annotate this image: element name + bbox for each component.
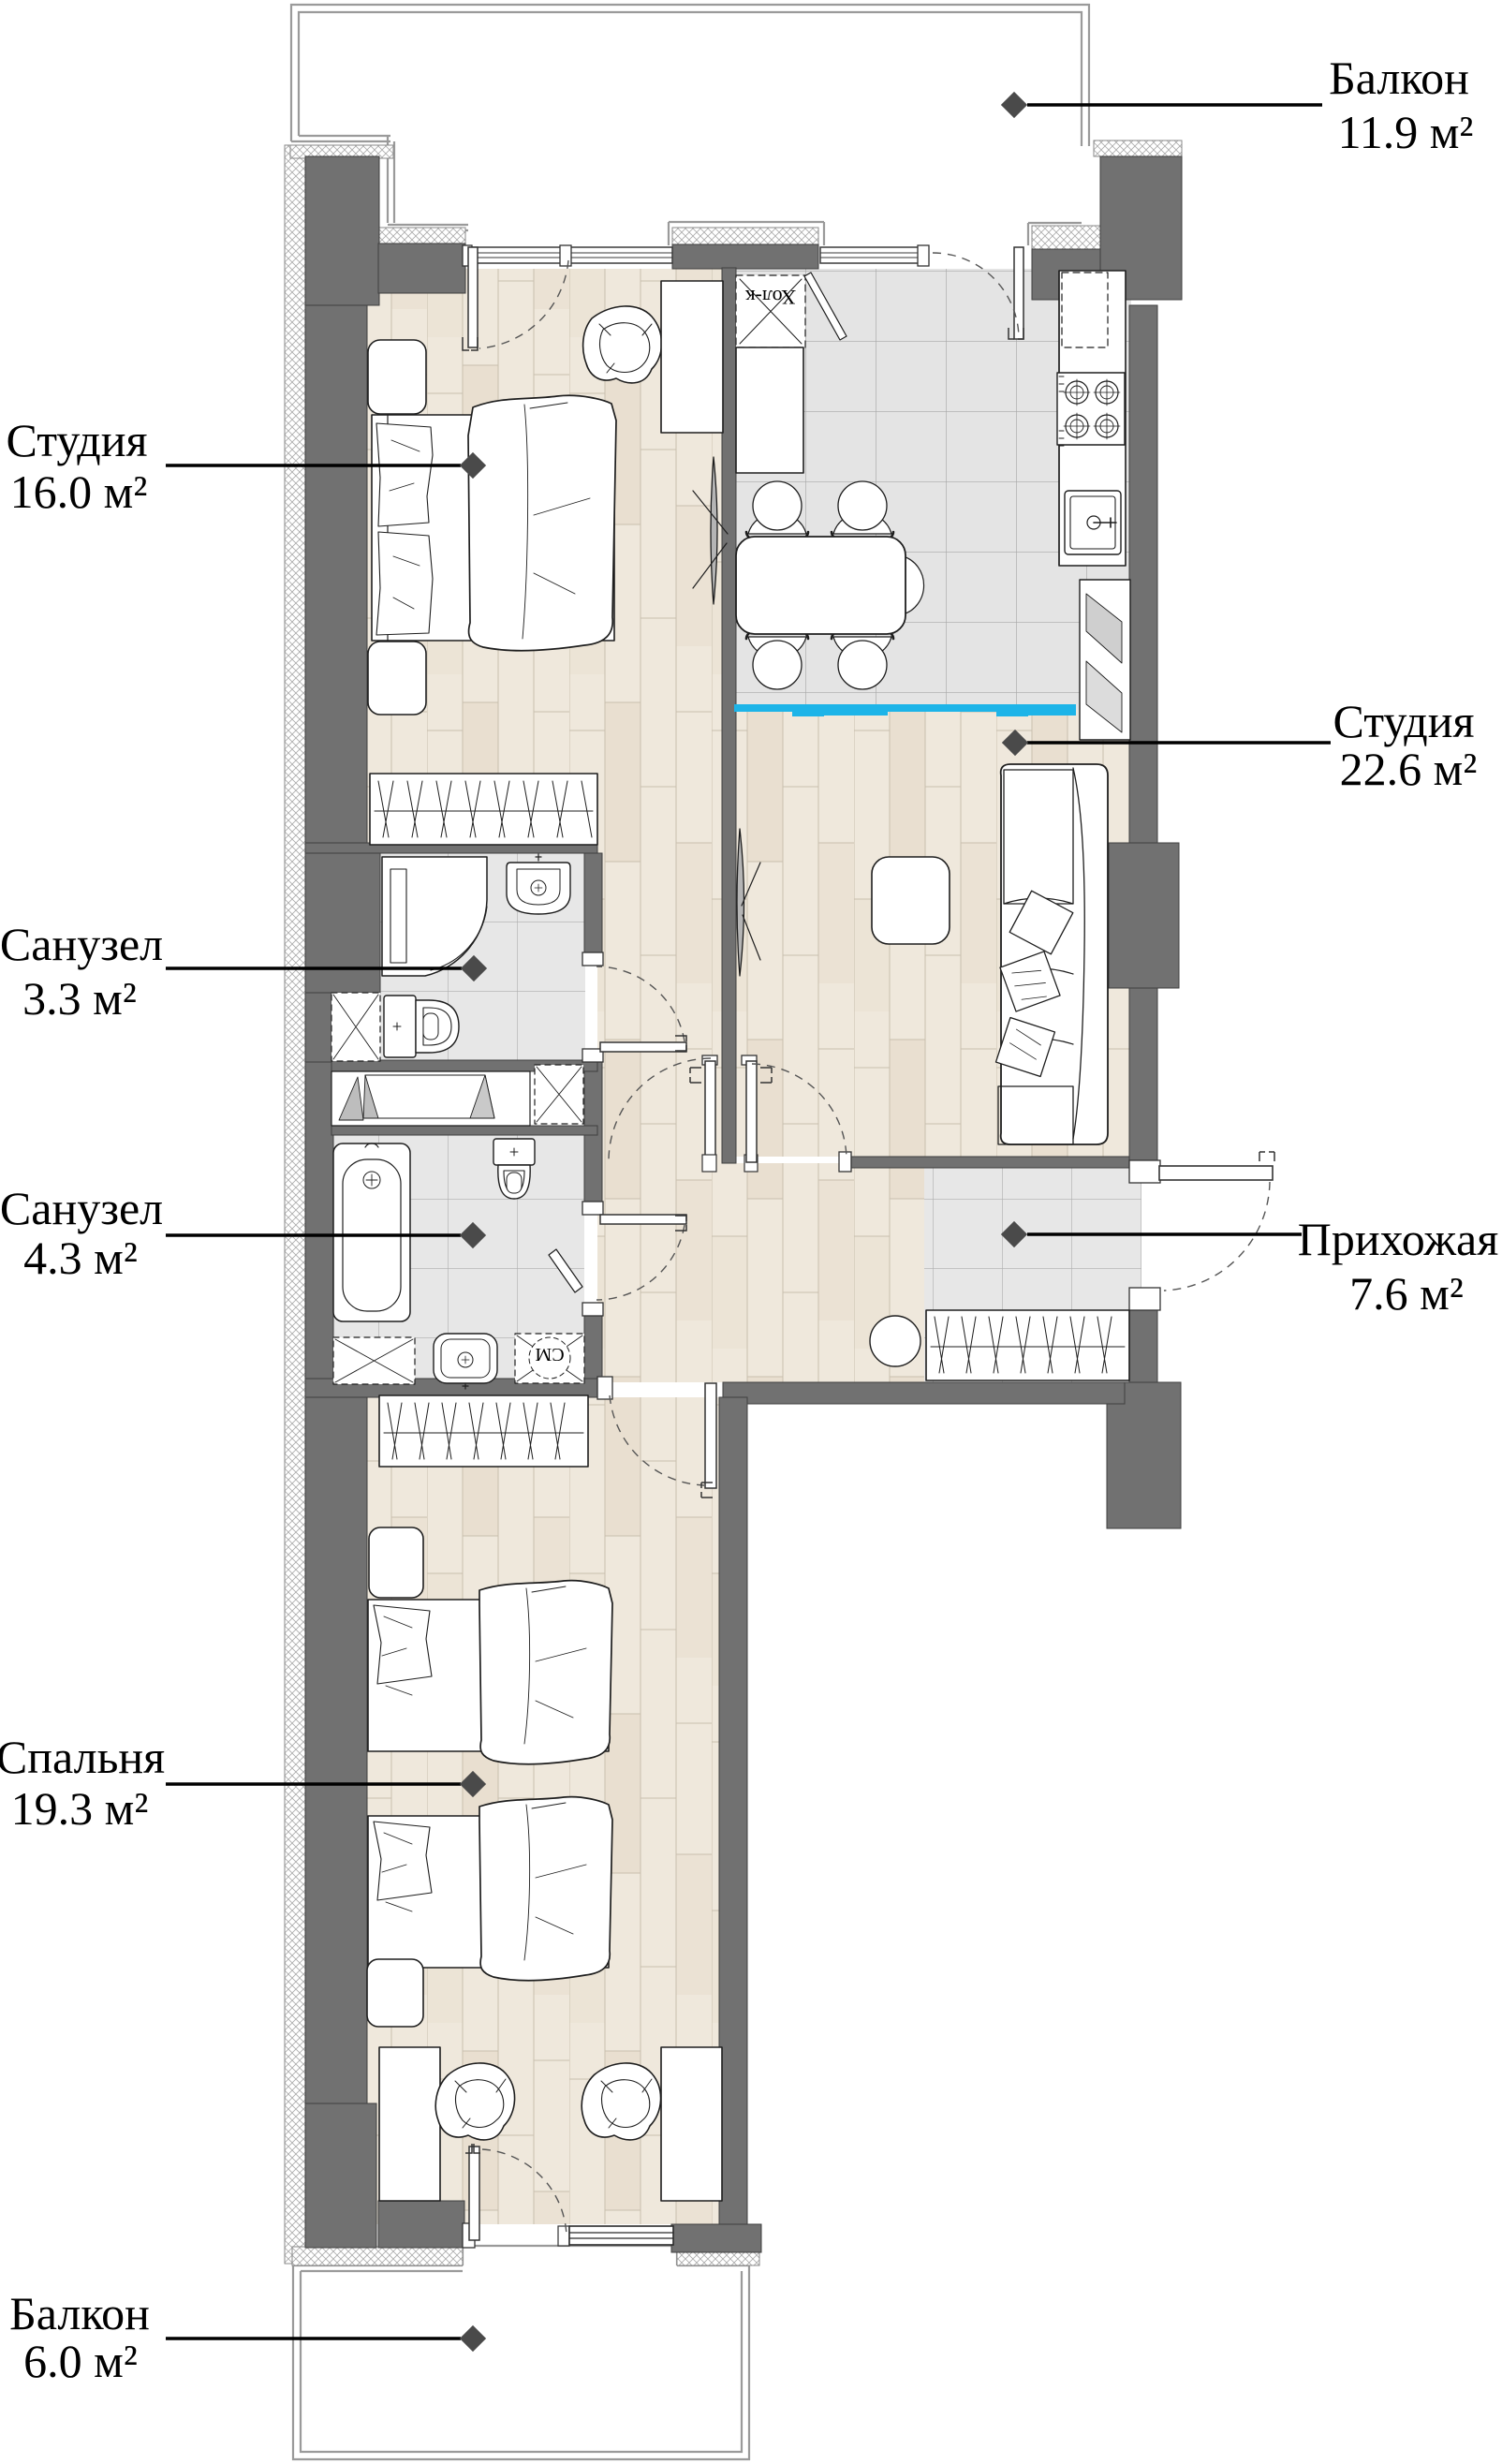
svg-text:22.6 м²: 22.6 м² xyxy=(1340,743,1478,795)
svg-text:6.0 м²: 6.0 м² xyxy=(23,2335,138,2387)
svg-text:Хол-к: Хол-к xyxy=(745,286,797,309)
svg-text:Балкон: Балкон xyxy=(9,2287,150,2339)
svg-text:Спальня: Спальня xyxy=(0,1731,165,1783)
svg-text:Санузел: Санузел xyxy=(0,918,163,970)
svg-text:Прихожая: Прихожая xyxy=(1298,1213,1498,1265)
svg-text:Балкон: Балкон xyxy=(1329,52,1469,104)
svg-text:7.6 м²: 7.6 м² xyxy=(1349,1267,1464,1320)
svg-text:Санузел: Санузел xyxy=(0,1182,163,1234)
svg-text:Студия: Студия xyxy=(1333,695,1475,747)
svg-text:3.3 м²: 3.3 м² xyxy=(22,972,137,1025)
svg-text:Студия: Студия xyxy=(7,414,148,466)
svg-text:19.3 м²: 19.3 м² xyxy=(11,1782,149,1835)
svg-text:11.9 м²: 11.9 м² xyxy=(1338,106,1474,158)
svg-text:16.0 м²: 16.0 м² xyxy=(10,465,148,518)
svg-text:4.3 м²: 4.3 м² xyxy=(23,1232,138,1284)
svg-text:СМ: СМ xyxy=(535,1344,564,1365)
